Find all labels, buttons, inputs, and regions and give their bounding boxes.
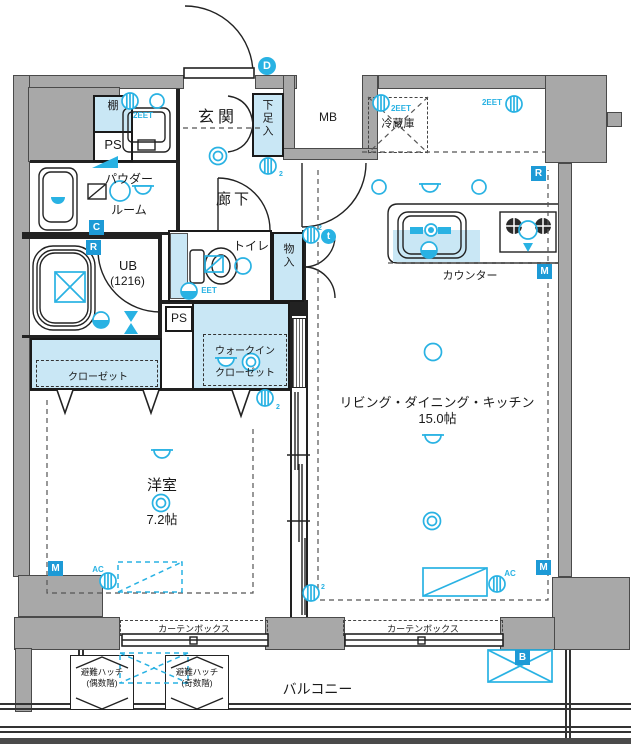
light-entrance (210, 148, 227, 165)
marker-m-bedroom: M (48, 561, 63, 576)
label-hall: 廊下 (202, 188, 266, 209)
kitchen-drain (421, 242, 437, 258)
label-ub-2: (1216) (95, 274, 160, 288)
marker-c: C (89, 220, 104, 235)
label-meter-box: MB (297, 110, 359, 124)
wall-nub (607, 112, 622, 127)
outlet-kitchen (506, 96, 522, 112)
label-ps-1: PS (97, 137, 129, 152)
kitchen-counter (388, 204, 558, 263)
wall-bottom-1 (14, 617, 120, 650)
outlet-ac-ldk (489, 576, 505, 592)
marker-r-kitchen: R (531, 166, 546, 181)
label-bedroom: 洋室 (136, 474, 188, 495)
light-kitchen-2 (419, 184, 441, 192)
label-curtain-box-2: カーテンボックス (345, 622, 501, 635)
label-shoebox: 下足入 (259, 99, 275, 138)
wall-block-bottomleft (18, 575, 103, 617)
wall-block-topright (545, 75, 607, 163)
label-balcony: バルコニー (270, 679, 365, 699)
shelf-wedge (92, 156, 118, 168)
marker-t-terminal: t (321, 229, 336, 244)
ac-space-bedroom (118, 562, 182, 592)
label-2eet-washer: 2EET (128, 111, 158, 120)
label-fridge: 冷蔵庫 (372, 115, 424, 131)
label-storage: 物入 (280, 243, 296, 269)
ldk-door (302, 163, 366, 227)
floor-plan: 玄関 下足入 MB 棚 PS 廊下 パウダー ルーム UB (1216) トイレ… (0, 0, 631, 744)
label-eet-toilet: EET (196, 286, 222, 295)
ac-space-ldk (423, 568, 487, 596)
closet-door-notches (57, 390, 250, 416)
light-bedroom-1 (151, 450, 173, 458)
wall-top-right (378, 75, 548, 89)
wall-block-bottomright (552, 577, 630, 650)
label-ps-2: PS (165, 311, 193, 325)
label-shelf: 棚 (100, 97, 126, 113)
bath-drain (93, 312, 109, 328)
balcony-rail-2 (0, 726, 631, 733)
marker-r-bath: R (86, 240, 101, 255)
light-kitchen-1 (372, 180, 386, 194)
wall-partition-cap (292, 302, 306, 316)
label-counter: カウンター (430, 267, 510, 283)
ldk-dashed-boundary (318, 170, 548, 600)
label-wic-1: ウォークイン (203, 342, 287, 357)
marker-d-entrance: D (258, 57, 276, 75)
light-ldk-3 (424, 513, 441, 530)
sub2-wic: 2 (273, 404, 283, 411)
wall-mb-bottom (283, 148, 378, 160)
label-entrance: 玄関 (186, 103, 250, 127)
washbasin (39, 168, 77, 230)
outlet-wic (257, 390, 273, 406)
wall-bottom-2 (265, 617, 345, 650)
label-closet: クローゼット (58, 368, 138, 383)
light-kitchen-3 (472, 180, 486, 194)
marker-b-balcony: B (515, 650, 530, 665)
wall-entry-divider (176, 89, 180, 162)
label-ac-ldk: AC (501, 569, 519, 578)
sub2-entrance: 2 (276, 171, 286, 178)
stove (500, 212, 556, 252)
label-ac-bedroom: AC (89, 565, 107, 574)
entrance-door (184, 6, 254, 78)
partition-hatch (292, 318, 306, 388)
marker-m-kitchen: M (537, 264, 552, 279)
label-curtain-box-1: カーテンボックス (122, 622, 266, 635)
label-powder-2: ルーム (100, 201, 158, 218)
wall-bottom-3 (500, 617, 555, 650)
wall-bath-right (158, 238, 162, 338)
light-ldk-2 (422, 435, 444, 443)
label-powder-1: パウダー (98, 170, 160, 187)
kitchen-faucet (410, 224, 451, 236)
wall-right (558, 163, 572, 577)
storage-doors (304, 236, 335, 298)
label-ub-1: UB (103, 258, 153, 273)
label-bedroom-size: 7.2帖 (134, 509, 190, 528)
bedroom-dashed-boundary (47, 400, 253, 593)
label-2eet-fridge: 2EET (386, 104, 416, 113)
toilet-door-panel (170, 233, 188, 299)
light-ldk-1 (425, 344, 442, 361)
outlet-entrance (260, 158, 276, 174)
sub2-partition: 2 (318, 584, 328, 591)
balcony-edge (0, 738, 631, 744)
label-hatch-odd-2: (奇数階) (167, 677, 227, 689)
label-2eet-kitchen: 2EET (477, 98, 507, 107)
label-hatch-even-2: (偶数階) (72, 677, 132, 689)
marker-m-ldk: M (536, 560, 551, 575)
wall-partition-right (306, 302, 308, 617)
label-wic-2: クローゼット (203, 364, 287, 379)
label-toilet: トイレ (222, 237, 280, 254)
label-ldk-size: 15.0帖 (400, 408, 475, 427)
wall-powder-right (176, 160, 180, 234)
